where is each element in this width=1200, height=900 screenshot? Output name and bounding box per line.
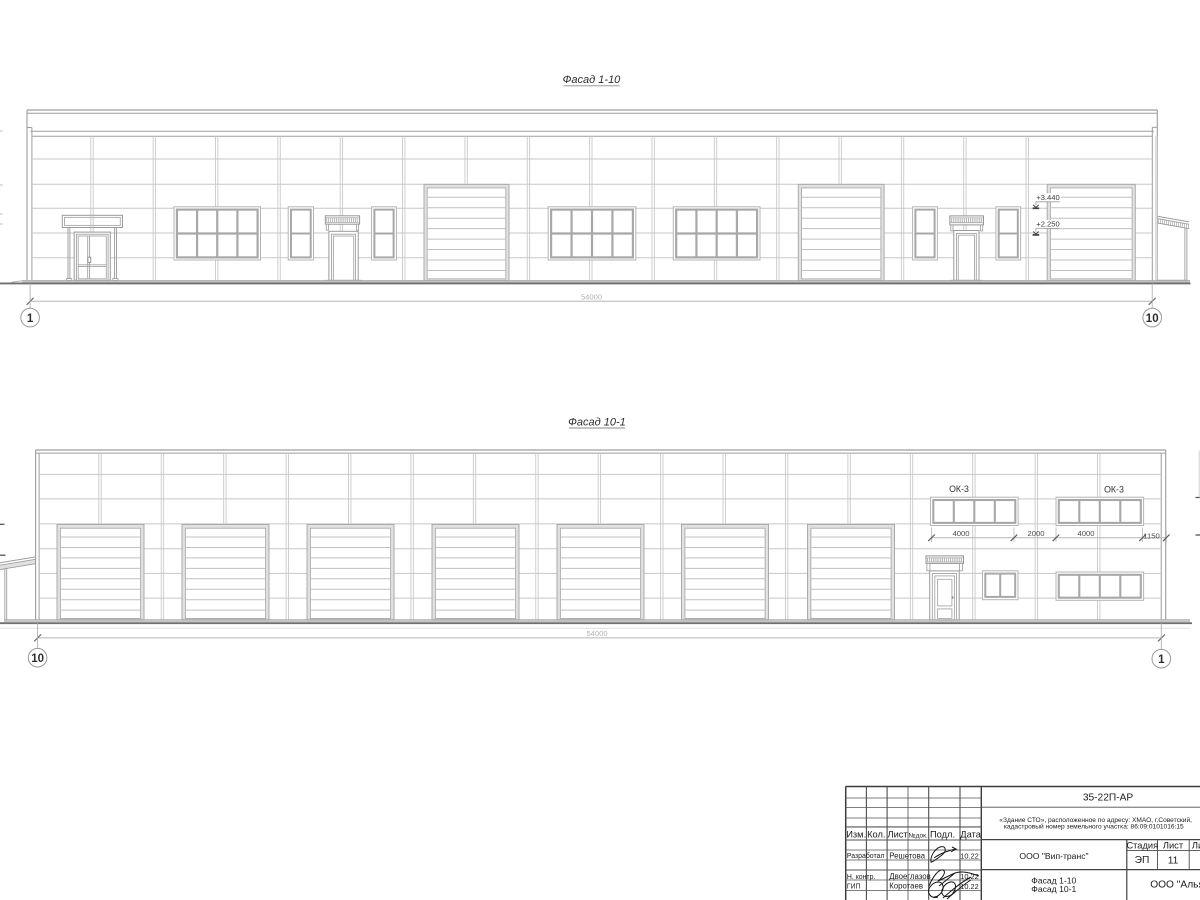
svg-text:+2.250: +2.250 [1036,220,1059,229]
svg-text:Стадия: Стадия [1126,840,1158,850]
svg-text:35-22П-АР: 35-22П-АР [1083,793,1134,804]
svg-text:ЭП: ЭП [1135,855,1150,866]
svg-text:«Здание СТО», расположенное по: «Здание СТО», расположенное по адресу: Х… [999,816,1192,824]
svg-text:Листов: Листов [1192,840,1200,850]
svg-text:11: 11 [1168,856,1179,867]
svg-text:10.22: 10.22 [960,852,979,861]
svg-text:№док.: №док. [909,832,928,839]
svg-text:10: 10 [1146,313,1159,325]
svg-text:ОК-3: ОК-3 [1104,485,1124,495]
svg-text:1: 1 [27,313,34,325]
svg-text:10: 10 [31,653,44,665]
svg-text:Лист: Лист [887,830,908,840]
svg-text:Дата: Дата [960,830,981,840]
svg-text:4000: 4000 [1077,529,1094,538]
svg-text:Двоеглазов: Двоеглазов [889,872,930,881]
svg-text:Подл.: Подл. [930,830,955,840]
svg-text:ООО "Вип-транс": ООО "Вип-транс" [1019,851,1088,861]
svg-text:Разработал: Разработал [847,852,885,860]
svg-text:2000: 2000 [1027,529,1044,538]
svg-text:кадастровый номер земельного у: кадастровый номер земельного участка: 86… [1004,823,1184,831]
svg-text:54000: 54000 [581,293,602,302]
svg-text:ГИП: ГИП [847,884,861,891]
svg-text:Лист: Лист [1163,840,1184,850]
svg-text:Коротаев: Коротаев [889,882,923,891]
svg-text:1150: 1150 [1143,532,1160,541]
svg-text:Фасад 1-10: Фасад 1-10 [563,74,622,86]
svg-text:Фасад 10-1: Фасад 10-1 [568,416,626,428]
svg-text:+3.440: +3.440 [1036,193,1059,202]
svg-text:54000: 54000 [586,629,607,638]
svg-text:ООО "Альянс": ООО "Альянс" [1150,879,1200,890]
svg-text:10.22: 10.22 [960,882,979,891]
svg-text:Кол.: Кол. [867,830,885,840]
svg-text:Решетова: Решетова [889,851,925,860]
svg-text:1: 1 [1158,654,1165,666]
svg-text:4000: 4000 [952,529,969,538]
svg-text:ОК-3: ОК-3 [949,484,969,494]
svg-text:Н. контр.: Н. контр. [847,874,876,881]
svg-text:Изм.: Изм. [846,830,866,840]
svg-text:Фасад 10-1: Фасад 10-1 [1031,884,1076,894]
